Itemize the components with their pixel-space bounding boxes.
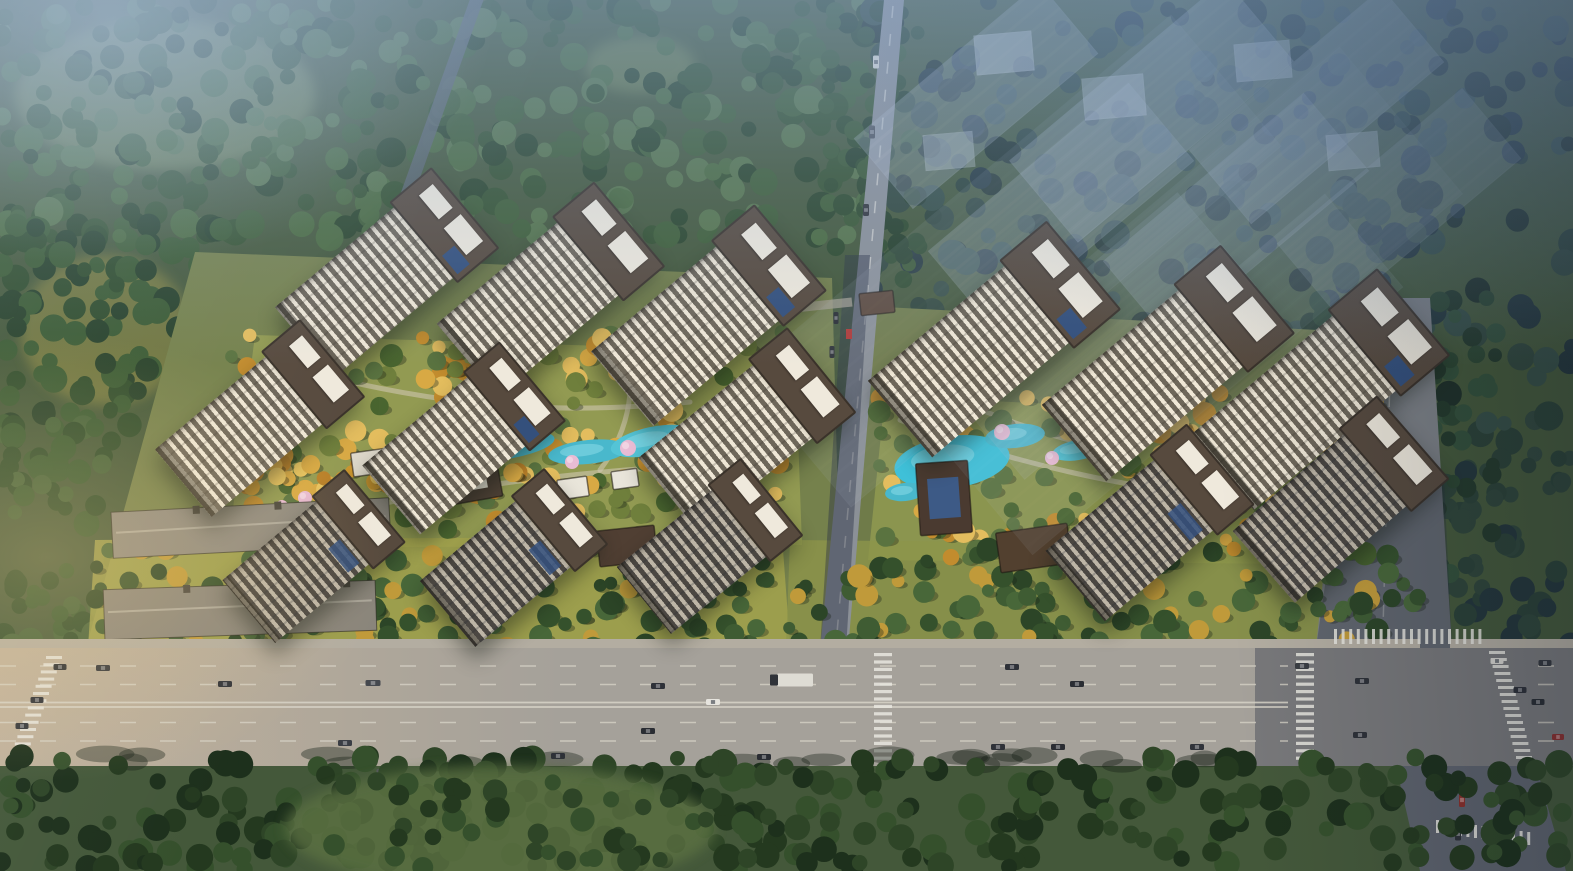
crosswalk-stripe <box>1380 629 1383 644</box>
crosswalk-stripe <box>1296 653 1314 656</box>
crosswalk-stripe <box>874 705 892 708</box>
crosswalk-stripe <box>1372 629 1375 644</box>
crosswalk-stripe <box>1342 629 1345 644</box>
pavilion-roof <box>351 447 398 477</box>
crosswalk-stripe <box>1505 714 1521 717</box>
crosswalk-stripe <box>874 734 892 737</box>
crosswalk-stripe <box>1296 690 1314 693</box>
crosswalk-stripe <box>1527 832 1530 845</box>
car <box>757 754 771 760</box>
roof-panel <box>927 477 961 519</box>
car <box>641 728 655 734</box>
crosswalk-stripe <box>1296 712 1314 715</box>
car <box>31 697 44 703</box>
entrance-gate-flag <box>846 329 852 339</box>
crosswalk-stripe <box>1296 742 1314 745</box>
crosswalk-stripe <box>1512 742 1528 745</box>
crosswalk-stripe <box>874 683 892 686</box>
crosswalk-stripe <box>874 742 892 745</box>
crosswalk-stripe <box>1387 629 1390 644</box>
crosswalk-stripe <box>1478 629 1481 644</box>
car <box>338 740 352 746</box>
crosswalk-stripe <box>1502 700 1518 703</box>
crosswalk-stripe <box>1489 651 1505 654</box>
car <box>834 312 839 324</box>
crosswalk-stripe <box>1357 629 1360 644</box>
car <box>869 126 875 139</box>
crosswalk-stripe <box>1509 728 1525 731</box>
crosswalk-stripe <box>33 692 49 695</box>
crosswalk-stripe <box>1296 697 1314 700</box>
car <box>991 744 1005 750</box>
crosswalk-stripe <box>1425 629 1428 644</box>
crosswalk-stripe <box>1349 629 1352 644</box>
crosswalk-stripe <box>1418 629 1421 644</box>
aerial-rendering-canvas <box>0 0 1573 871</box>
crosswalk-stripe <box>1334 629 1337 644</box>
crosswalk-stripe <box>874 675 892 678</box>
crosswalk-stripe <box>874 720 892 723</box>
truck <box>770 674 813 687</box>
car <box>706 699 720 705</box>
crosswalk-stripe <box>25 714 41 717</box>
crosswalk-stripe <box>1496 679 1512 682</box>
crosswalk-stripe <box>1511 735 1527 738</box>
car <box>1070 681 1084 687</box>
pavilion-roof <box>859 290 895 315</box>
car <box>1552 734 1564 740</box>
crosswalk-stripe <box>1296 727 1314 730</box>
car <box>1355 678 1369 684</box>
crosswalk-stripe <box>1296 683 1314 686</box>
car <box>1532 699 1545 705</box>
crosswalk-stripe <box>28 706 44 709</box>
crosswalk-stripe <box>1433 629 1436 644</box>
crosswalk-stripe <box>1463 629 1466 644</box>
pavilion-roof <box>596 525 657 567</box>
pavilion-roof <box>557 476 589 500</box>
car <box>218 681 232 687</box>
car <box>1005 664 1019 670</box>
pavilion-roof <box>611 468 639 489</box>
crosswalk-stripe <box>1296 675 1314 678</box>
car <box>863 204 869 216</box>
car <box>651 683 665 689</box>
crosswalk-stripe <box>1296 705 1314 708</box>
car <box>1491 658 1504 664</box>
crosswalk-stripe <box>874 712 892 715</box>
crosswalk-stripe <box>1296 734 1314 737</box>
crosswalk-stripe <box>1498 686 1514 689</box>
car <box>96 665 110 671</box>
crosswalk-stripe <box>1493 665 1509 668</box>
crosswalk-stripe <box>1364 629 1367 644</box>
crosswalk-stripe <box>1395 629 1398 644</box>
crosswalk-stripe <box>874 697 892 700</box>
crosswalk-stripe <box>17 735 33 738</box>
crosswalk-stripe <box>38 678 54 681</box>
car <box>830 346 835 358</box>
crosswalk-stripe <box>1500 693 1516 696</box>
crosswalk-stripe <box>874 690 892 693</box>
crosswalk-stripe <box>1456 629 1459 644</box>
crosswalk-stripe <box>1471 629 1474 644</box>
car <box>822 418 827 430</box>
car <box>54 664 67 670</box>
car <box>1514 687 1527 693</box>
car <box>16 723 29 729</box>
car <box>1295 663 1309 669</box>
crosswalk-stripe <box>1507 721 1523 724</box>
crosswalk-stripe <box>874 660 892 663</box>
car <box>1353 732 1367 738</box>
landscape-ground-layer <box>0 0 1573 871</box>
crosswalk-stripe <box>46 656 62 659</box>
crosswalk-stripe <box>874 668 892 671</box>
crosswalk-stripe <box>1410 629 1413 644</box>
crosswalk-stripe <box>1440 629 1443 644</box>
crosswalk-stripe <box>874 727 892 730</box>
car <box>1190 744 1204 750</box>
crosswalk-stripe <box>1514 749 1530 752</box>
crosswalk-stripe <box>36 685 52 688</box>
crosswalk-stripe <box>41 670 57 673</box>
car <box>366 680 381 686</box>
car <box>1051 744 1065 750</box>
crosswalk-stripe <box>1448 629 1451 644</box>
crosswalk-stripe <box>874 653 892 656</box>
crosswalk-stripe <box>1402 629 1405 644</box>
crosswalk-stripe <box>1474 825 1477 838</box>
car <box>873 56 879 69</box>
crosswalk-stripe <box>1503 707 1519 710</box>
car <box>551 753 565 759</box>
car <box>826 382 831 394</box>
crosswalk-stripe <box>1296 720 1314 723</box>
car <box>1539 660 1552 666</box>
crosswalk-stripe <box>1494 672 1510 675</box>
